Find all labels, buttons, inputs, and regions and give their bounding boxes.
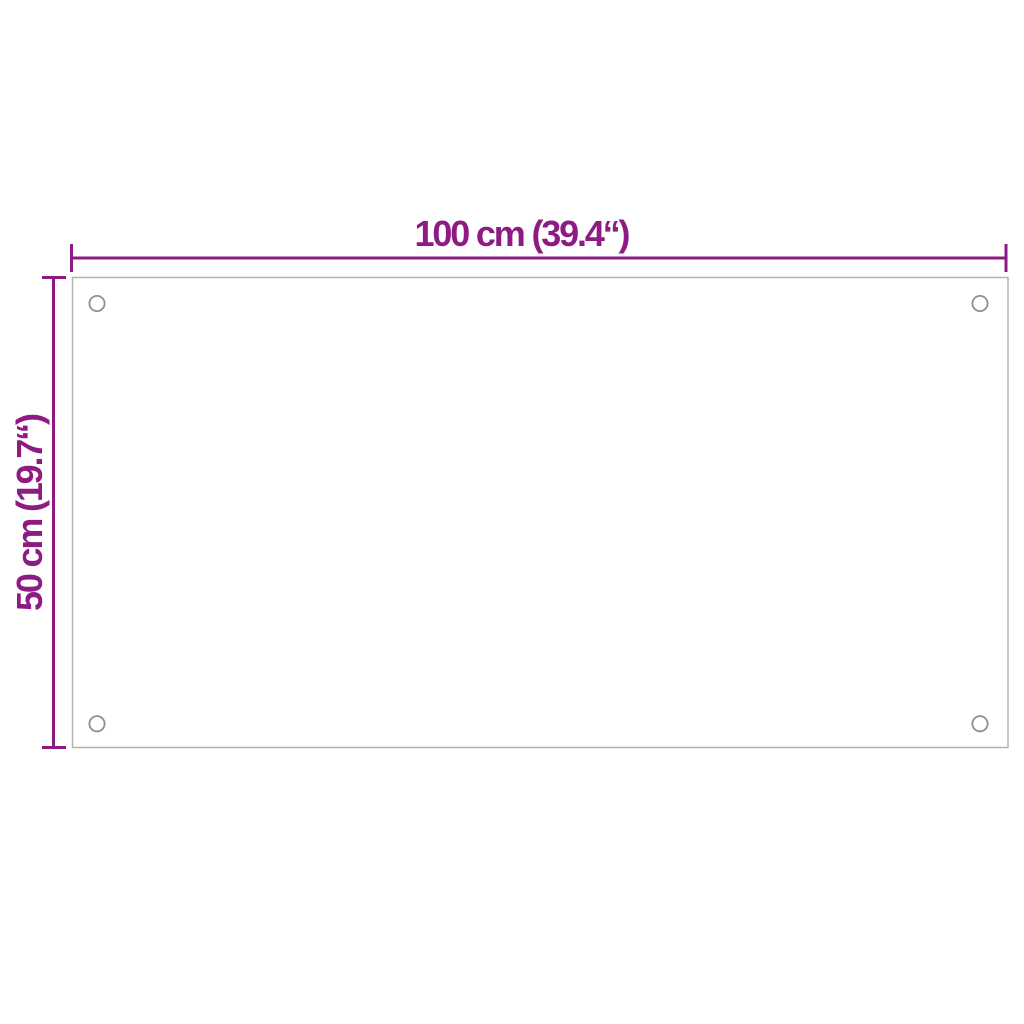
svg-text:50 cm (19.7“): 50 cm (19.7“): [9, 413, 50, 611]
svg-text:100 cm (39.4“): 100 cm (39.4“): [415, 213, 631, 254]
